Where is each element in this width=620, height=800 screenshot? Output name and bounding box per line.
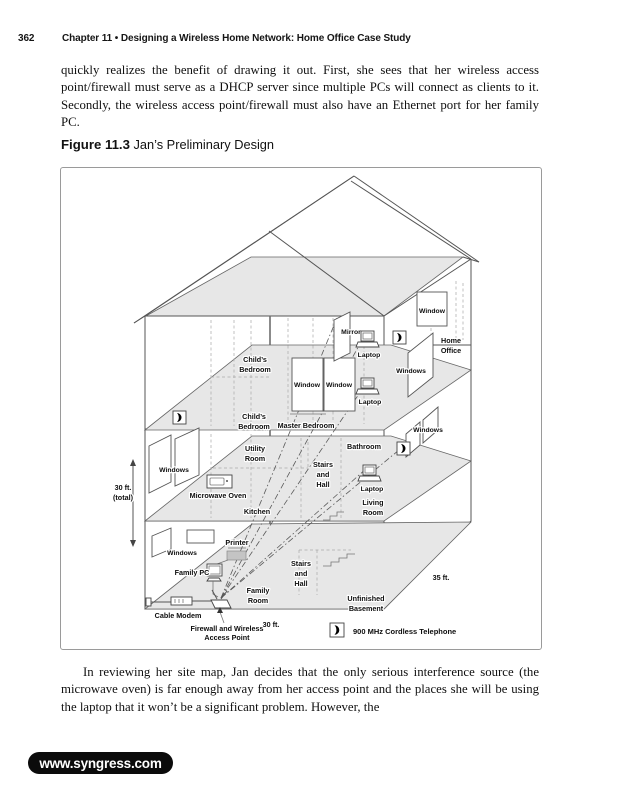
publisher-url: www.syngress.com — [39, 756, 161, 771]
childs-bedroom-a-label-2: Bedroom — [239, 365, 271, 374]
cordless-phone-icon-3 — [397, 442, 410, 455]
house-diagram: Window Window Window Windows Windows — [61, 168, 539, 647]
access-point-label-1: Firewall and Wireless — [190, 624, 263, 633]
windows-right-upper-label: Windows — [396, 368, 426, 375]
home-office-label-2: Office — [441, 346, 461, 355]
height-dimension: 30 ft. (total) — [113, 459, 136, 547]
depth-dim-label: 35 ft. — [433, 573, 450, 582]
windows-left-basement-label: Windows — [167, 550, 197, 557]
mb-window-label-2: Window — [326, 382, 353, 389]
width-dim-label: 30 ft. — [263, 620, 280, 629]
master-bedroom-windows: Window Window — [290, 358, 355, 414]
figure-label: Figure 11.3 — [61, 137, 130, 152]
stairs-basement-label-2: and — [295, 569, 308, 578]
stairs-main-label-3: Hall — [316, 480, 329, 489]
living-room-label-1: Living — [362, 498, 383, 507]
unfinished-basement-label-1: Unfinished — [347, 594, 384, 603]
childs-bedroom-a-label-1: Child’s — [243, 355, 267, 364]
chapter-header: Chapter 11 • Designing a Wireless Home N… — [62, 33, 411, 44]
legend-phone-icon — [330, 623, 344, 637]
home-office-label-1: Home — [441, 336, 461, 345]
figure-frame: Window Window Window Windows Windows — [60, 167, 542, 650]
mirror-label: Mirror — [341, 329, 361, 336]
childs-bedroom-b-label-2: Bedroom — [238, 422, 270, 431]
stairs-main-label-2: and — [317, 470, 330, 479]
publisher-url-badge: www.syngress.com — [28, 752, 173, 774]
stairs-main-label-1: Stairs — [313, 460, 333, 469]
figure-caption: Figure 11.3 Jan’s Preliminary Design — [61, 137, 274, 152]
legend-phone-label: 900 MHz Cordless Telephone — [353, 627, 456, 636]
laptop-label-3: Laptop — [361, 486, 384, 493]
cable-modem-label: Cable Modem — [155, 611, 202, 620]
printer-label: Printer — [225, 538, 248, 547]
stairs-basement-label-1: Stairs — [291, 559, 311, 568]
access-point-label-2: Access Point — [204, 633, 250, 642]
family-room-label-2: Room — [248, 596, 268, 605]
attic-window: Window — [417, 292, 447, 326]
bathroom-label: Bathroom — [347, 442, 381, 451]
living-room-label-2: Room — [363, 508, 383, 517]
utility-room-label-2: Room — [245, 454, 265, 463]
windows-left-main-label: Windows — [159, 467, 189, 474]
left-wall-windows-basement: Windows — [152, 528, 214, 557]
family-room-label-1: Family — [247, 586, 270, 595]
left-wall-windows-main: Windows — [149, 428, 199, 493]
height-dim-label-2: (total) — [113, 493, 134, 502]
body-paragraph-bottom: In reviewing her site map, Jan decides t… — [61, 664, 539, 716]
laptop-label-1: Laptop — [358, 352, 381, 359]
cordless-phone-icon-1 — [173, 411, 186, 424]
master-bedroom-label: Master Bedroom — [278, 421, 335, 430]
laptop-label-2: Laptop — [359, 399, 382, 406]
page-number: 362 — [18, 33, 34, 44]
attic-floor-plane — [146, 257, 463, 316]
microwave-label: Microwave Oven — [190, 491, 247, 500]
family-pc-label: Family PC — [175, 568, 210, 577]
figure-title: Jan’s Preliminary Design — [130, 137, 274, 152]
attic-window-label: Window — [419, 308, 446, 315]
legend: 900 MHz Cordless Telephone — [330, 623, 456, 637]
body-paragraph-top: quickly realizes the benefit of drawing … — [61, 62, 539, 132]
cordless-phone-icon-2 — [393, 331, 406, 344]
unfinished-basement-label-2: Basement — [349, 604, 384, 613]
book-page: 362 Chapter 11 • Designing a Wireless Ho… — [0, 0, 620, 800]
windows-right-mid-label: Windows — [413, 427, 443, 434]
kitchen-label: Kitchen — [244, 507, 270, 516]
height-dim-label-1: 30 ft. — [115, 483, 132, 492]
utility-room-label-1: Utility — [245, 444, 265, 453]
stairs-basement-label-3: Hall — [294, 579, 307, 588]
childs-bedroom-b-label-1: Child’s — [242, 412, 266, 421]
mb-window-label-1: Window — [294, 382, 321, 389]
